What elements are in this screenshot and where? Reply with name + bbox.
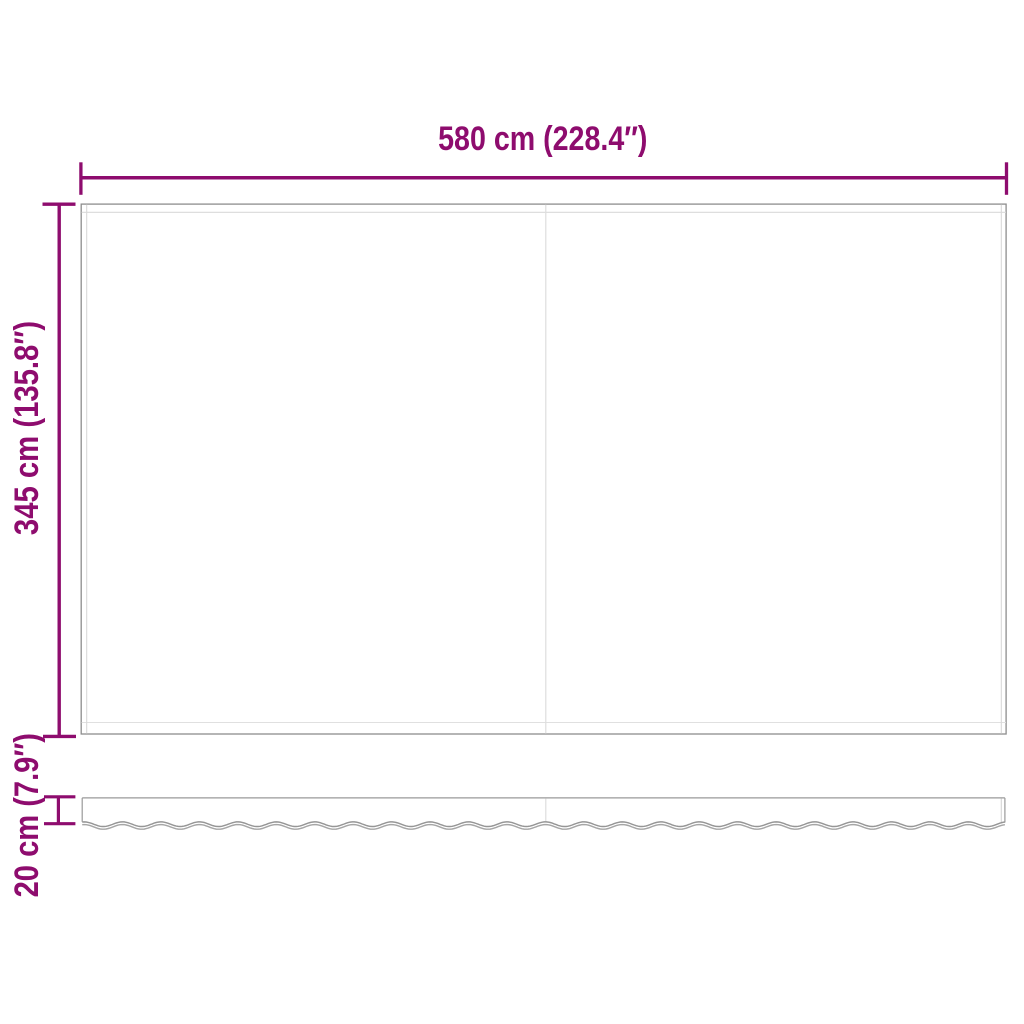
svg-text:580 cm (228.4″): 580 cm (228.4″) bbox=[438, 119, 647, 158]
svg-text:345 cm (135.8″): 345 cm (135.8″) bbox=[7, 321, 46, 535]
svg-text:20 cm (7.9″): 20 cm (7.9″) bbox=[7, 733, 46, 897]
